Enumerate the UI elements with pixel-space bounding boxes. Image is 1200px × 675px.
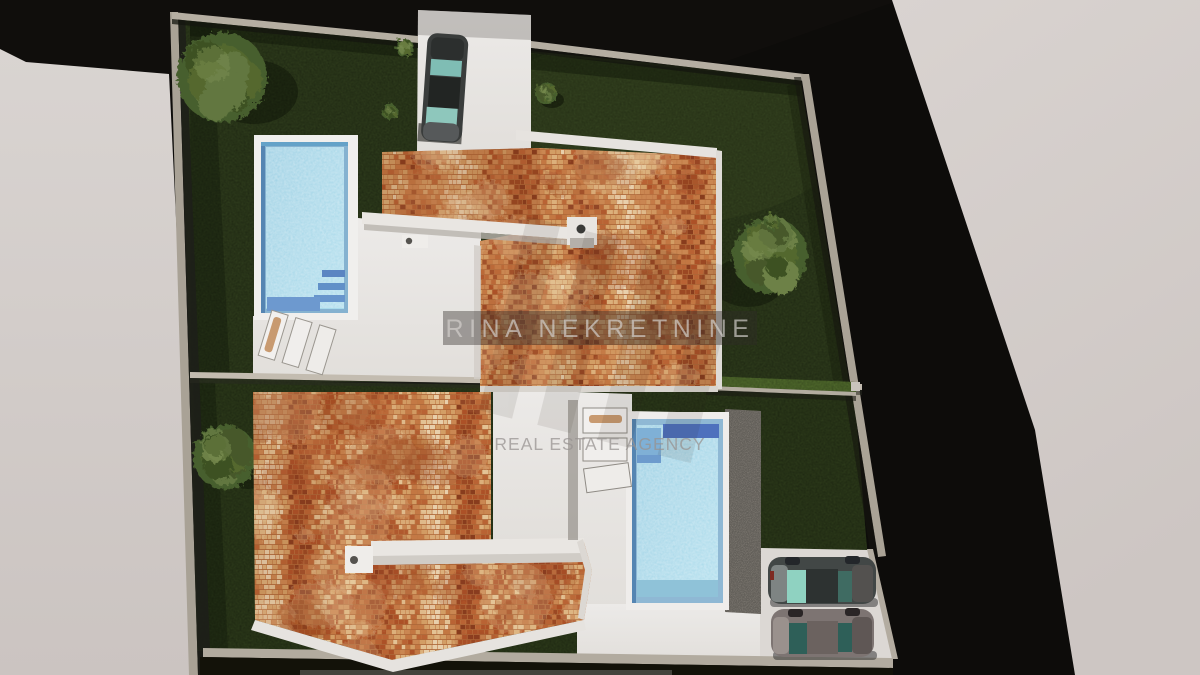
svg-text:REAL ESTATE AGENCY: REAL ESTATE AGENCY [494,434,705,454]
svg-text:RINA NEKRETNINE: RINA NEKRETNINE [446,315,755,343]
